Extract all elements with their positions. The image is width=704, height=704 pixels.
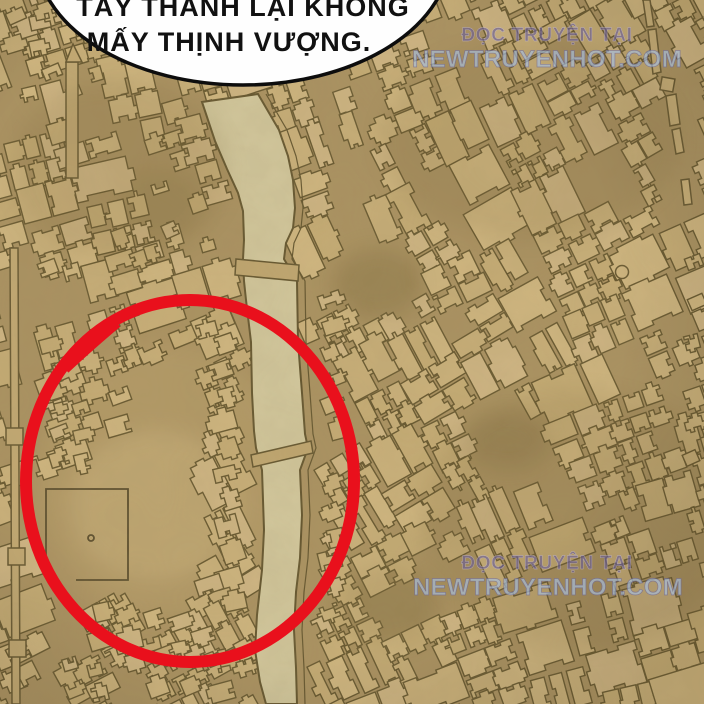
svg-text:ĐỌC TRUYỆN TẠI: ĐỌC TRUYỆN TẠI xyxy=(461,552,632,574)
svg-text:NEWTRUYENHOT.COM: NEWTRUYENHOT.COM xyxy=(412,46,682,73)
svg-text:NEWTRUYENHOT.COM: NEWTRUYENHOT.COM xyxy=(413,574,683,601)
svg-text:ĐỌC TRUYỆN TẠI: ĐỌC TRUYỆN TẠI xyxy=(461,24,632,46)
svg-text:MẤY THỊNH VƯỢNG.: MẤY THỊNH VƯỢNG. xyxy=(87,26,371,57)
svg-text:TÂY THÀNH LẠI KHÔNG: TÂY THÀNH LẠI KHÔNG xyxy=(76,0,410,22)
